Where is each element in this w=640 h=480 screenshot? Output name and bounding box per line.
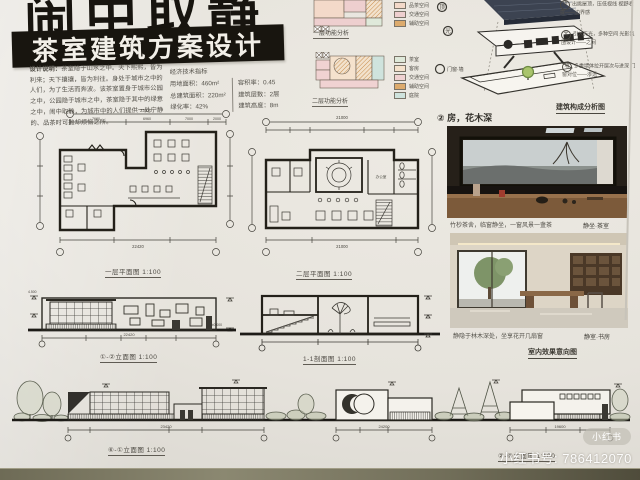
legend-label: 品茶空间 — [409, 2, 429, 9]
photo1-caption: 竹杪茶舍，临窗静坐，一窗风景一盏茶 — [450, 220, 552, 229]
xiaohongshu-id-watermark: 小红书号: 786412070 — [500, 448, 632, 467]
svg-text:办公室: 办公室 — [376, 174, 387, 179]
indicator: 建筑层数：2层 — [238, 89, 279, 101]
title-banner: 茶室建筑方案设计 — [12, 24, 285, 68]
indicator: 总建筑面积：220m² — [170, 90, 228, 102]
func-analysis-2-legend: 茶室 客房 交通空间 辅助空间 庭院 — [394, 56, 429, 99]
elevation-1-2-label: ①-②立面图 1:100 — [100, 351, 157, 363]
legend-label: 交通空间 — [409, 74, 429, 81]
axon-note-light: 光引入天光，多种空间 光影氛围设计——之间 — [561, 30, 637, 48]
note-ring: 墙 — [562, 62, 572, 72]
legend-label: 庭院 — [409, 92, 419, 99]
photo1-tag: 静坐·茶室 — [583, 221, 609, 230]
photo2-caption: 静隐于林木深处，坐享花开几扇窗 — [453, 331, 543, 340]
plan2-label: 二层平面图 1:100 — [296, 268, 352, 280]
legend-label: 交通空间 — [409, 11, 429, 18]
svg-text:±0.000: ±0.000 — [212, 323, 222, 327]
indicators-col2: 容积率：0.45 建筑层数：2层 建筑高度：8m — [233, 77, 280, 112]
reference-photo-tearoom — [447, 126, 627, 218]
elevation-bottom-left: 23420 — [6, 374, 338, 444]
plan1-label: 一层平面图 1:100 — [105, 266, 161, 278]
svg-text:7680: 7680 — [92, 117, 100, 121]
legend-swatch — [394, 74, 406, 81]
axon-callouts: 顶 光 门窗·墙 — [436, 3, 464, 74]
floor-plan-1: 23420 7680 6960 7000 2000 22420 — [30, 106, 238, 266]
svg-text:21000: 21000 — [336, 244, 348, 249]
svg-text:22420: 22420 — [123, 332, 135, 337]
elevation-bottom-left-label: ⑥-①立面图 1:100 — [108, 444, 165, 456]
design-note-label: 设计说明： — [29, 66, 61, 74]
indicators-title: 经济技术指标 — [170, 65, 282, 78]
svg-text:21000: 21000 — [336, 115, 348, 120]
section-1-1-label: 1-1剖面图 1:100 — [303, 353, 356, 365]
svg-text:24200: 24200 — [378, 424, 390, 429]
legend-swatch — [394, 20, 406, 27]
legend-label: 辅助空间 — [409, 20, 429, 27]
gallery-label: 室内效果意向图 — [528, 347, 577, 359]
note-text: 出挑屋顶，压低视线 视野收拢——边界感 — [560, 1, 633, 16]
composition-axon-diagram: 顶 光 门窗·墙 — [432, 0, 637, 118]
svg-text:4.500: 4.500 — [28, 290, 37, 294]
svg-text:2000: 2000 — [213, 117, 221, 121]
axon-note-wall: 墙多重墙体拉开层次与进深 门窗对位——渗透 — [562, 62, 638, 80]
indicator: 用地面积：460m² — [170, 78, 228, 90]
svg-text:7000: 7000 — [185, 117, 193, 121]
gallery-section-title: ② 房，花木深 — [437, 111, 492, 124]
indicator: 建筑高度：8m — [238, 100, 279, 112]
photo-of-presentation-board: 闹中取静 茶室建筑方案设计 设计说明：茶室隐于山水之中。天下熙熙，皆为利来；天下… — [0, 0, 640, 480]
note-text: 引入天光，多种空间 光影氛围设计——之间 — [561, 31, 634, 46]
legend-label: 客房 — [409, 65, 419, 72]
bushes-right — [266, 394, 326, 420]
svg-text:22420: 22420 — [132, 244, 144, 249]
trees-middle — [435, 382, 513, 421]
note-text: 多重墙体拉开层次与进深 门窗对位——渗透 — [562, 63, 635, 78]
table-surface — [0, 468, 640, 480]
axon-note-roof: 顶出挑屋顶，压低视线 视野收拢——边界感 — [560, 0, 636, 18]
section-1-1 — [240, 282, 440, 354]
svg-text:门窗·墙: 门窗·墙 — [447, 66, 464, 73]
legend-label: 茶室 — [409, 56, 419, 63]
svg-text:23420: 23420 — [140, 108, 152, 113]
indicator: 容积率：0.45 — [238, 77, 279, 89]
elevation-1-2: 4.500 ±0.000 22420 — [26, 280, 238, 348]
banner-text: 茶室建筑方案设计 — [32, 24, 265, 67]
floor-plan-2: 21000 21000 办公室 — [246, 112, 438, 267]
legend-swatch — [394, 2, 406, 9]
legend-swatch — [394, 11, 406, 18]
svg-text:23420: 23420 — [160, 424, 172, 429]
composition-analysis-label: 建筑构成分析图 — [556, 102, 605, 114]
svg-text:光: 光 — [445, 27, 451, 35]
svg-text:6960: 6960 — [143, 117, 151, 121]
legend-swatch — [394, 65, 406, 72]
note-ring: 光 — [561, 30, 571, 40]
legend-swatch — [394, 56, 406, 63]
trees-right — [610, 389, 630, 421]
xiaohongshu-badge: 小红书 — [583, 428, 631, 445]
photo2-tag: 静室·书房 — [584, 332, 610, 341]
func-analysis-1-legend: 品茶空间 交通空间 辅助空间 — [394, 2, 429, 27]
legend-label: 辅助空间 — [409, 83, 429, 90]
legend-swatch — [394, 92, 406, 99]
legend-swatch — [394, 83, 406, 90]
svg-text:19600: 19600 — [554, 424, 566, 429]
svg-text:顶: 顶 — [439, 4, 445, 11]
func-analysis-2-diagram — [314, 52, 388, 92]
note-ring: 顶 — [560, 0, 570, 10]
reference-photo-study — [450, 233, 628, 328]
func-analysis-1-label: 一层功能分析 — [313, 28, 349, 39]
trees-left — [14, 381, 68, 422]
func-analysis-2-label: 二层功能分析 — [312, 96, 348, 107]
